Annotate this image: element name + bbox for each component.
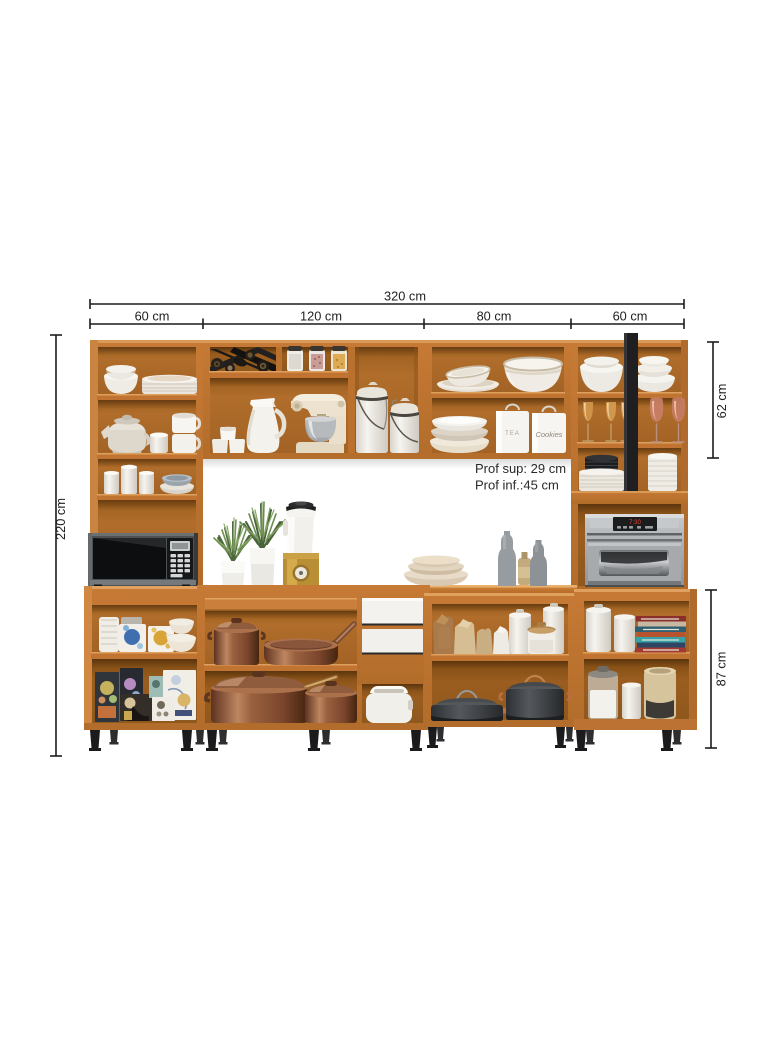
svg-text:7:30: 7:30 xyxy=(629,520,641,526)
svg-text:80 cm: 80 cm xyxy=(477,309,512,324)
svg-text:Prof inf.:45 cm: Prof inf.:45 cm xyxy=(475,478,559,493)
svg-text:87 cm: 87 cm xyxy=(714,652,729,687)
svg-text:Cookies: Cookies xyxy=(535,430,562,439)
svg-text:60 cm: 60 cm xyxy=(135,309,170,324)
svg-text:220 cm: 220 cm xyxy=(53,498,68,540)
svg-text:TEA: TEA xyxy=(505,431,520,437)
svg-text:60 cm: 60 cm xyxy=(613,309,648,324)
svg-text:Prof sup: 29 cm: Prof sup: 29 cm xyxy=(475,461,566,476)
svg-text:62 cm: 62 cm xyxy=(714,384,729,419)
svg-text:320 cm: 320 cm xyxy=(384,289,426,304)
svg-text:120 cm: 120 cm xyxy=(300,309,342,324)
